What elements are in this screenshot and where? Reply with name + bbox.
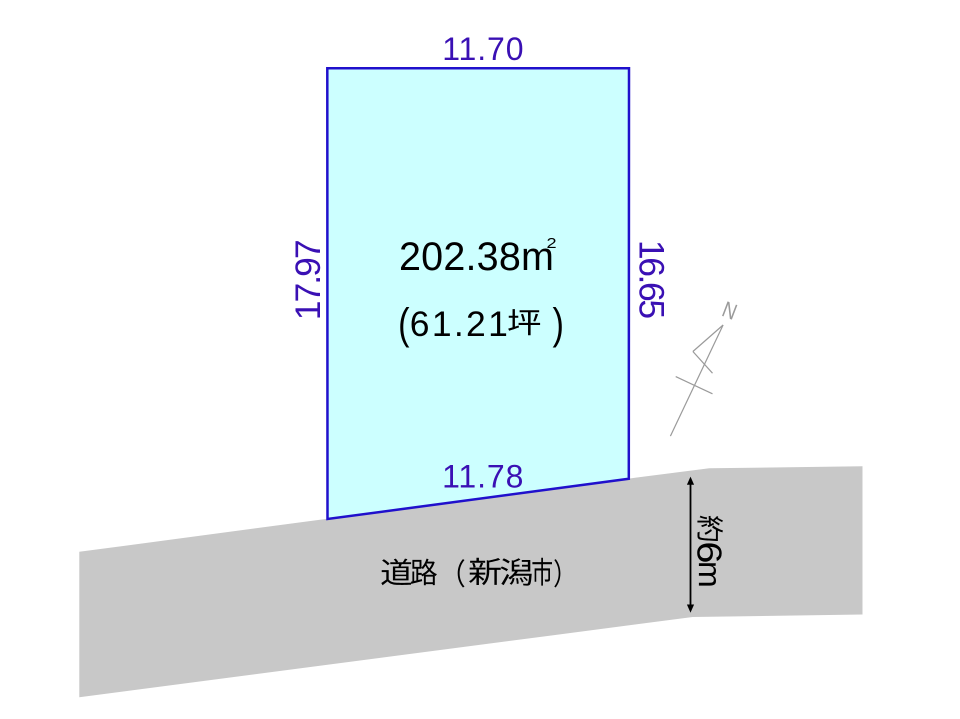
svg-text:16.65: 16.65: [632, 240, 672, 318]
svg-text:): ): [553, 299, 564, 348]
svg-text:11.78: 11.78: [442, 459, 524, 495]
svg-text:2: 2: [547, 236, 557, 252]
svg-text:61.21: 61.21: [410, 304, 510, 344]
svg-text:(: (: [398, 299, 409, 348]
svg-text:17.97: 17.97: [288, 241, 328, 320]
svg-text:11.70: 11.70: [442, 31, 524, 67]
svg-text:202.38m: 202.38m: [399, 235, 554, 279]
